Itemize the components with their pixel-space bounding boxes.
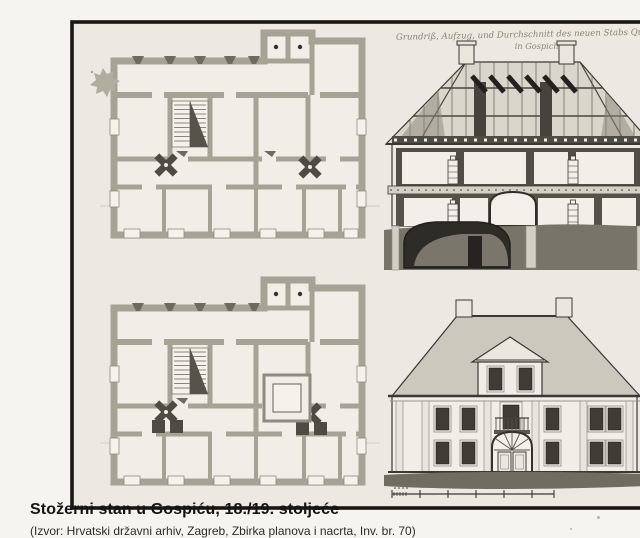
light-well bbox=[264, 375, 310, 421]
figure-scan: Grundriß, Aufzug, und Durchschnitt des n… bbox=[70, 20, 640, 510]
caption-source: (Izvor: Hrvatski državni arhiv, Zagreb, … bbox=[30, 524, 416, 538]
ground-wash bbox=[384, 472, 640, 489]
floor-plan-upper bbox=[90, 33, 366, 238]
scan-speck bbox=[597, 516, 600, 519]
handwritten-title-line2: in Gospich. bbox=[515, 41, 562, 51]
floor-plan-lower bbox=[110, 280, 366, 485]
archival-drawing: Grundriß, Aufzug, und Durchschnitt des n… bbox=[70, 20, 640, 510]
scanned-book-page: { "figure": { "handwritten_title": { "li… bbox=[0, 0, 640, 537]
carriage-arch bbox=[490, 192, 536, 226]
scan-speck bbox=[570, 528, 572, 530]
caption-title: Stožerni stan u Gospiću, 18./19. stoljeć… bbox=[30, 501, 339, 519]
cellar-door bbox=[468, 236, 482, 268]
